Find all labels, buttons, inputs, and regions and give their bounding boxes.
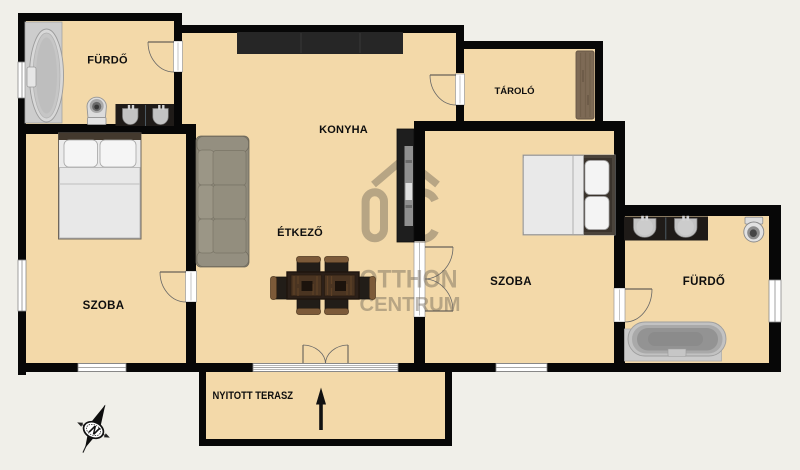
svg-text:KONYHA: KONYHA — [319, 124, 368, 136]
svg-text:SZOBA: SZOBA — [490, 276, 532, 288]
svg-text:ÉTKEZŐ: ÉTKEZŐ — [277, 226, 323, 239]
svg-text:FÜRDŐ: FÜRDŐ — [87, 54, 128, 67]
svg-text:SZOBA: SZOBA — [83, 300, 125, 312]
svg-text:TÁROLÓ: TÁROLÓ — [494, 85, 534, 97]
svg-text:FÜRDŐ: FÜRDŐ — [683, 275, 725, 288]
svg-text:NYITOTT TERASZ: NYITOTT TERASZ — [213, 390, 294, 402]
